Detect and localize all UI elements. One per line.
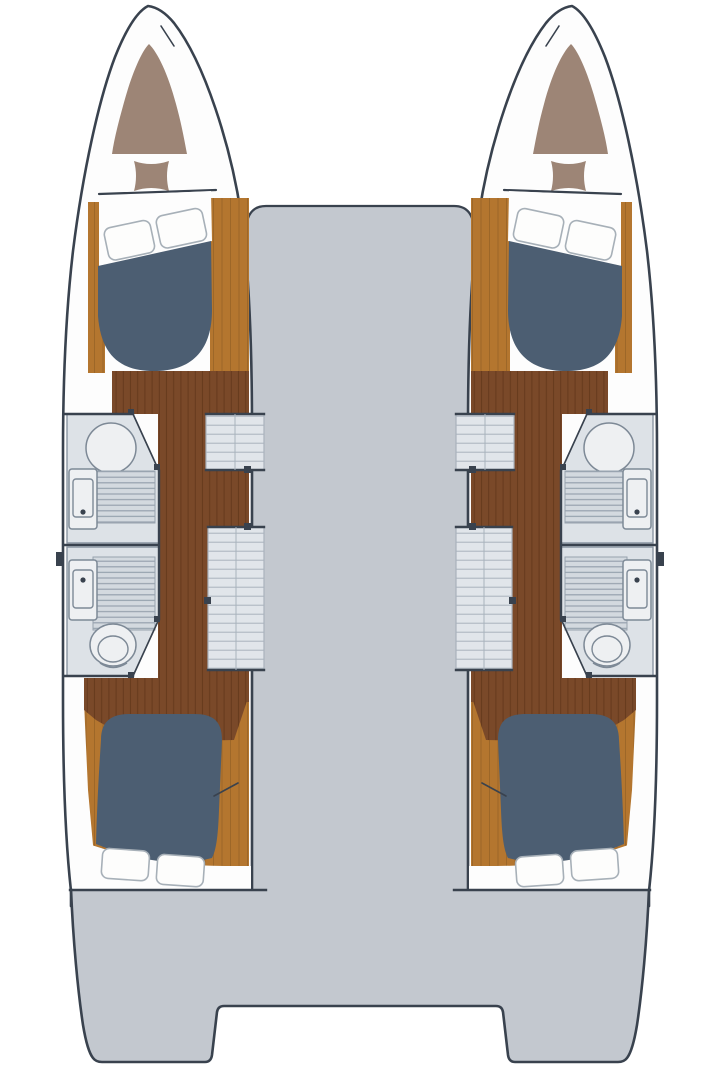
saloon-deck-floor: [246, 206, 474, 902]
catamaran-floor-plan: [0, 0, 720, 1080]
catamaran-floor-plan-page: [0, 0, 720, 1080]
